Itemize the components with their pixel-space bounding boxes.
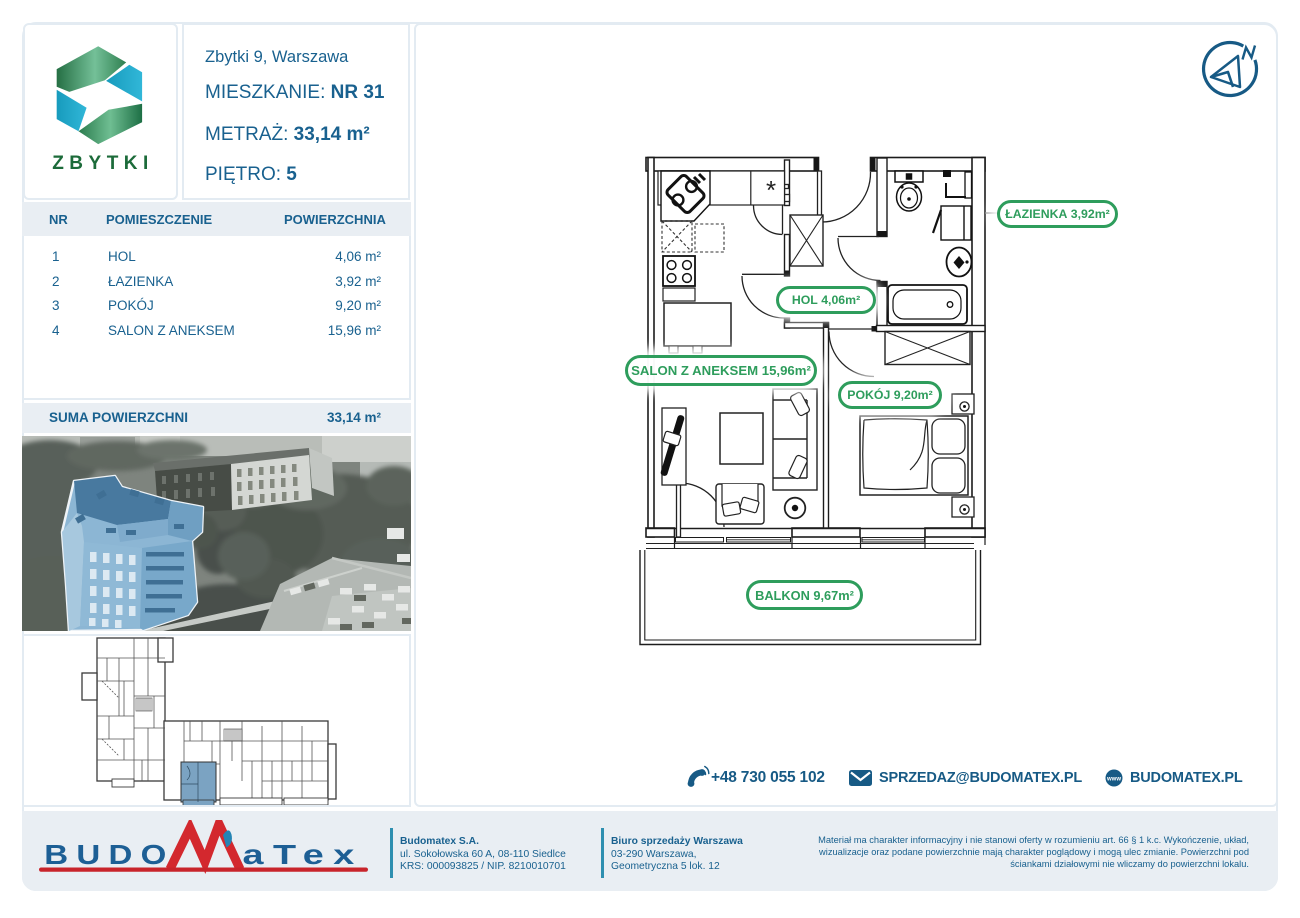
svg-text:ZBYTKI: ZBYTKI (52, 153, 154, 174)
svg-text:www: www (1106, 777, 1121, 783)
svg-text:BUDO: BUDO (44, 839, 174, 870)
svg-text:aTex: aTex (243, 840, 364, 871)
svg-text:*: * (766, 175, 776, 205)
